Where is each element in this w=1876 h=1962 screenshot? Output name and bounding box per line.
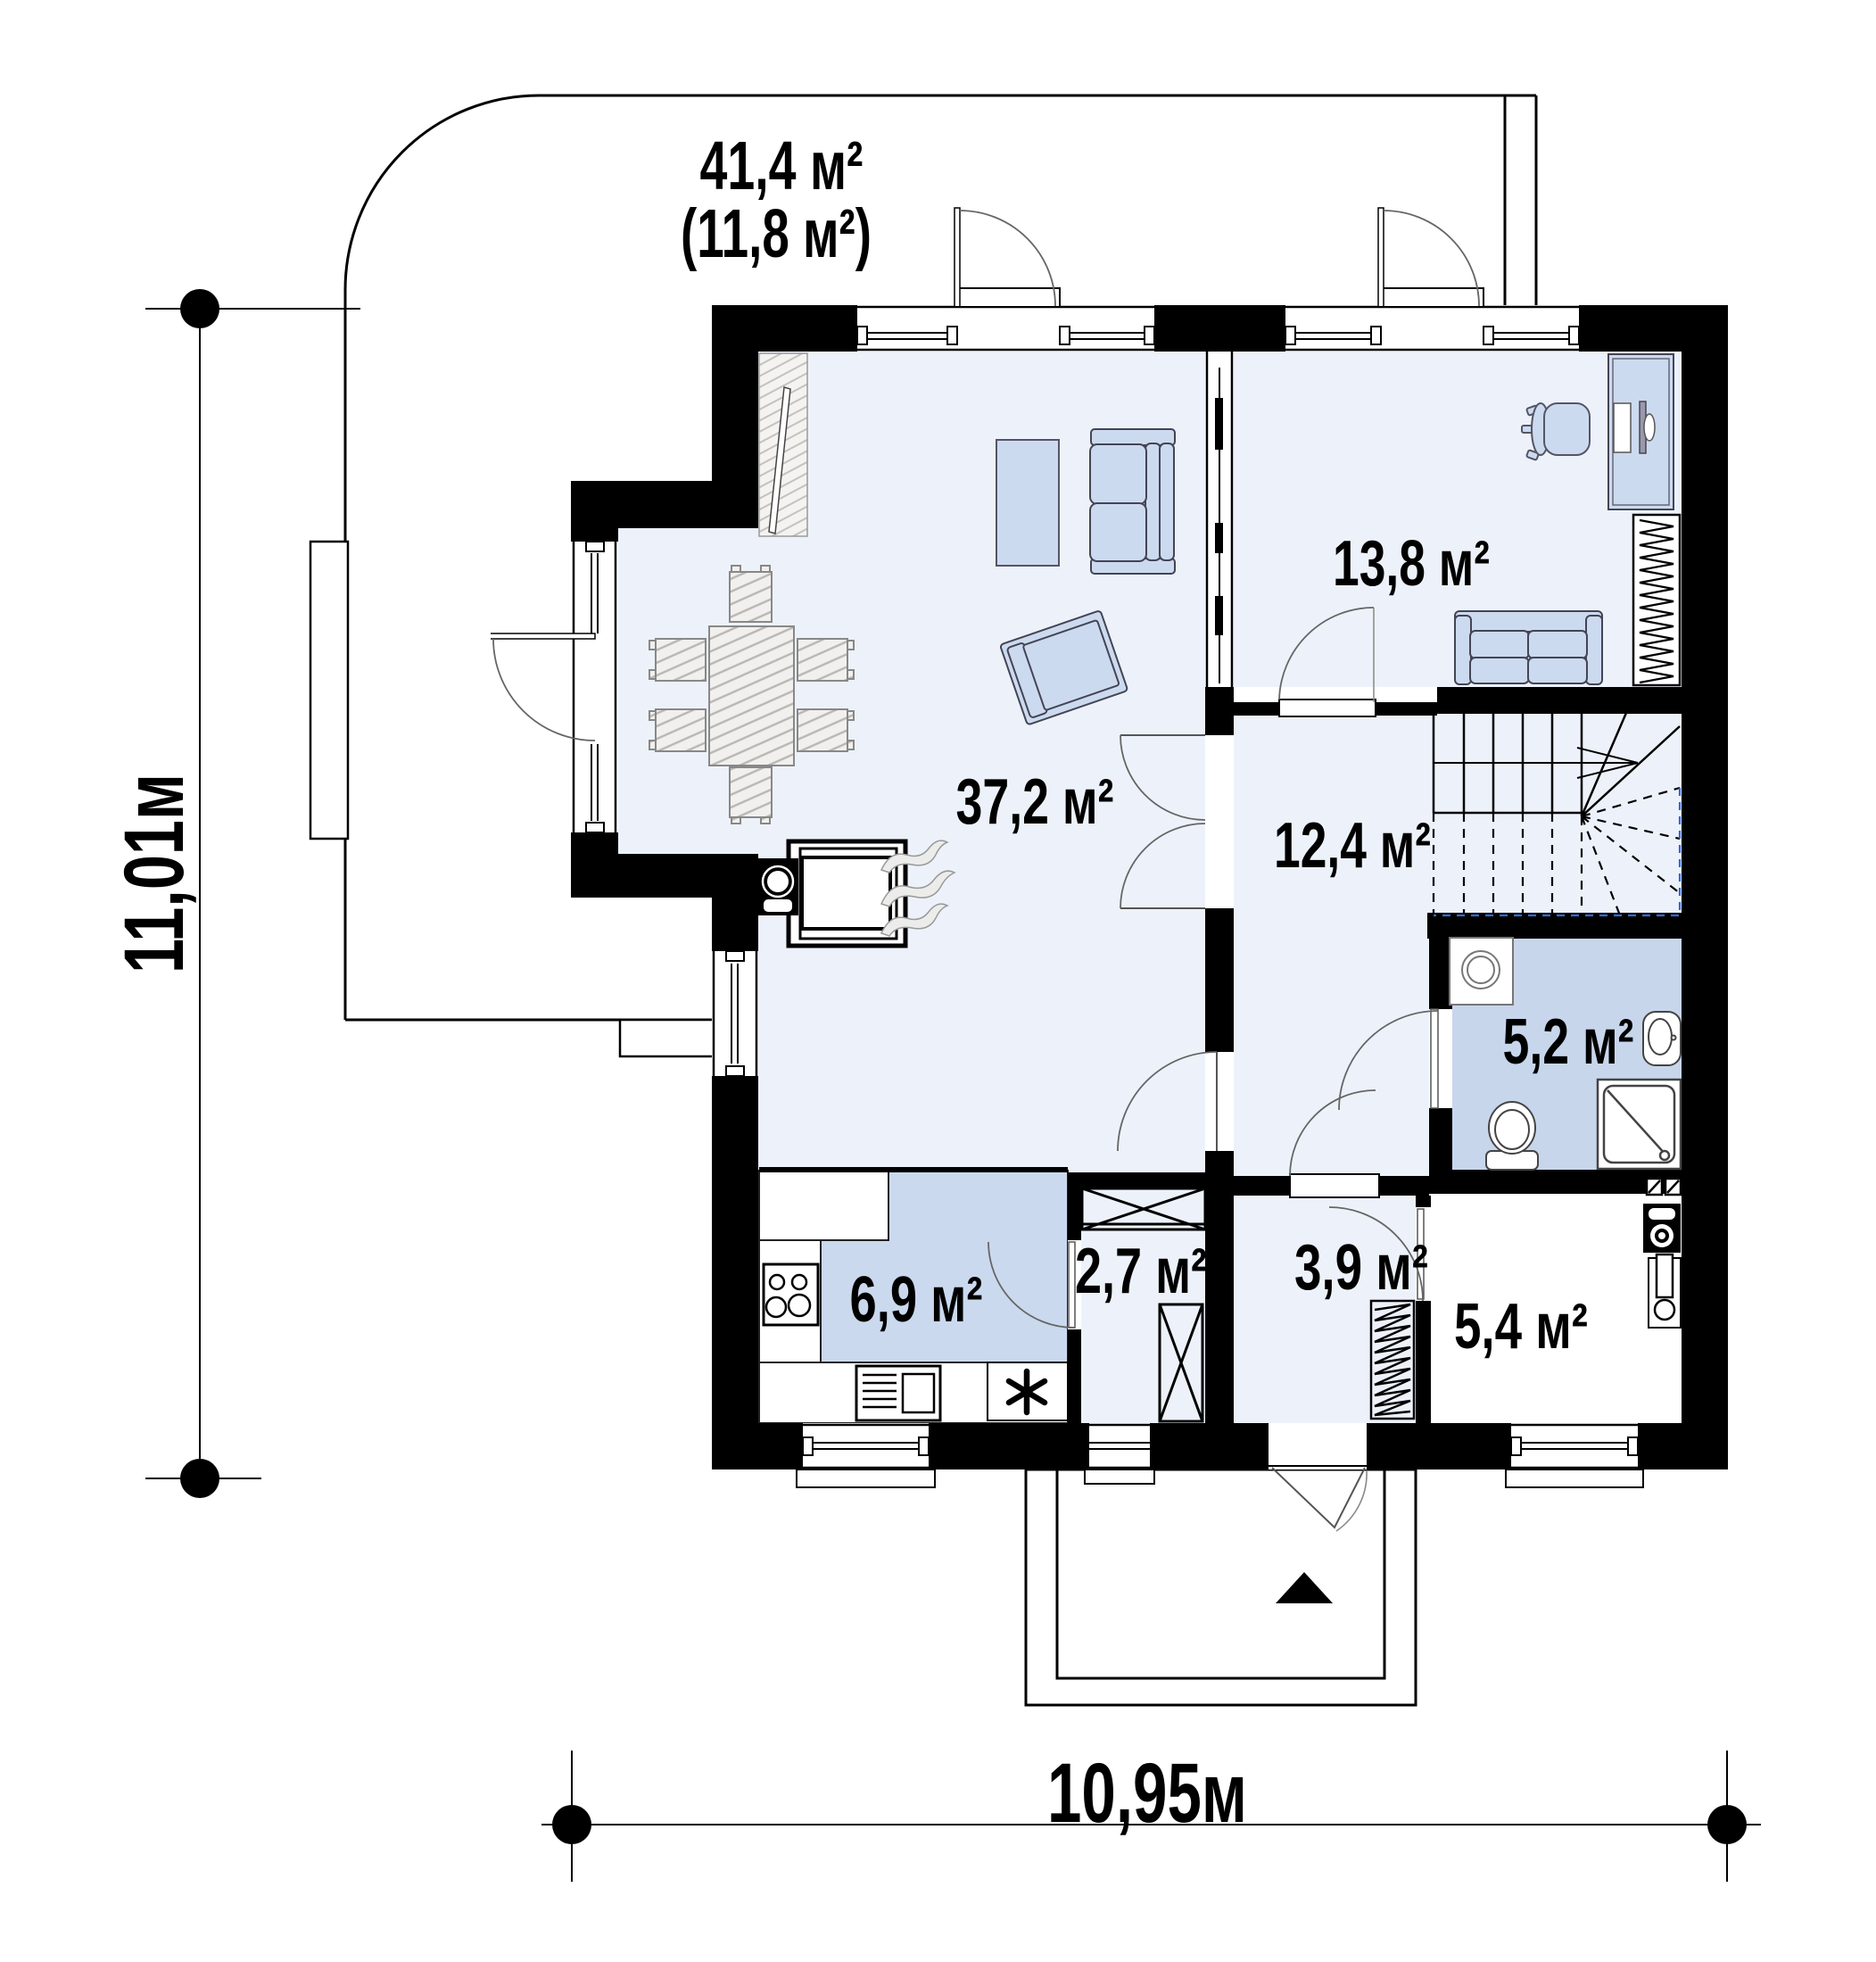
svg-text:3,9 м²: 3,9 м² bbox=[1294, 1232, 1428, 1304]
svg-text:37,2 м²: 37,2 м² bbox=[956, 766, 1114, 838]
svg-text:2,7 м²: 2,7 м² bbox=[1075, 1236, 1207, 1307]
svg-text:10,95м: 10,95м bbox=[1047, 1746, 1247, 1841]
svg-text:41,4 м²: 41,4 м² bbox=[700, 128, 864, 204]
svg-text:6,9 м²: 6,9 м² bbox=[850, 1264, 983, 1336]
svg-text:(11,8 м²): (11,8 м²) bbox=[681, 195, 872, 272]
svg-text:12,4 м²: 12,4 м² bbox=[1274, 810, 1431, 882]
svg-text:13,8 м²: 13,8 м² bbox=[1333, 528, 1490, 600]
svg-text:5,2 м²: 5,2 м² bbox=[1503, 1006, 1634, 1078]
svg-text:5,4 м²: 5,4 м² bbox=[1454, 1291, 1588, 1362]
svg-text:11,01м: 11,01м bbox=[107, 774, 202, 973]
